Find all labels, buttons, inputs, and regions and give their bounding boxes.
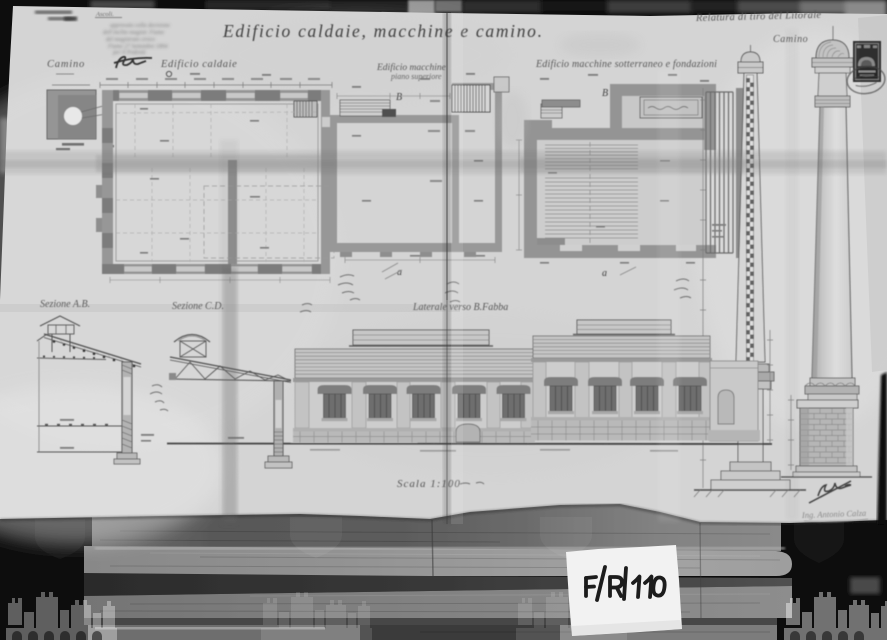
svg-text:Edificio caldaie, macchine e c: Edificio caldaie, macchine e camino. [222,21,544,41]
svg-text:per il Podestà: per il Podestà [112,50,146,56]
svg-text:B: B [396,92,402,103]
svg-text:approvato colla decisione: approvato colla decisione [110,23,170,29]
svg-text:Ascoli.: Ascoli. [95,11,114,18]
svg-text:Camino: Camino [47,59,85,70]
svg-text:Edificio macchine sotterraneo: Edificio macchine sotterraneo e fondazio… [535,59,717,70]
svg-text:Fiume 27 Settembre 1894: Fiume 27 Settembre 1894 [107,43,168,50]
svg-text:piano superiore: piano superiore [390,72,442,81]
svg-text:dell inclito magistr. Fiume: dell inclito magistr. Fiume [103,30,165,36]
svg-text:a: a [602,268,607,279]
svg-text:Edificio caldaie: Edificio caldaie [160,59,237,70]
svg-text:del magistrato civico: del magistrato civico [106,37,155,43]
svg-text:B: B [602,88,608,99]
